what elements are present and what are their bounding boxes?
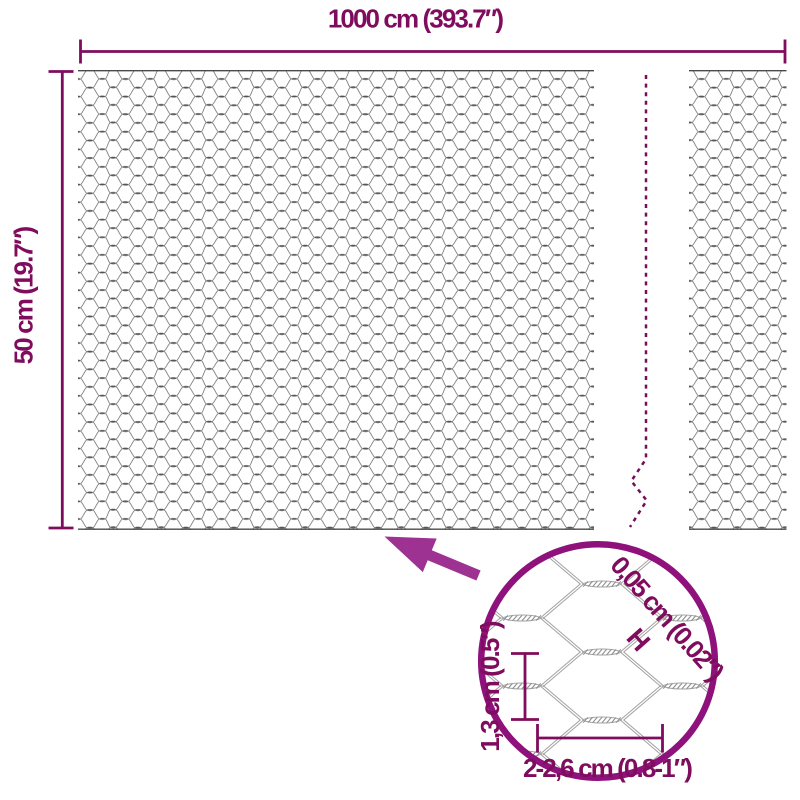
svg-text:2-2,6 cm (0.8-1″): 2-2,6 cm (0.8-1″) [523,753,692,783]
svg-text:1000 cm (393.7″): 1000 cm (393.7″) [328,4,504,34]
svg-text:50 cm (19.7″): 50 cm (19.7″) [9,226,39,364]
svg-text:1,3 cm (0.5″): 1,3 cm (0.5″) [475,621,505,752]
